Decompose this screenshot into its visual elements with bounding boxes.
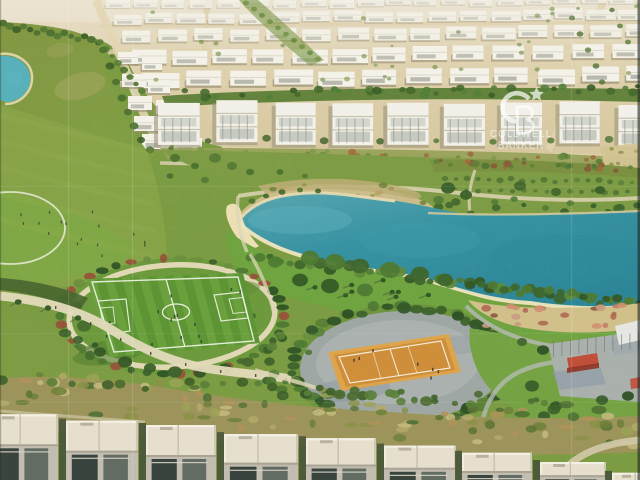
svg-text:BANKER: BANKER [498, 141, 545, 152]
svg-text:COLDWELL: COLDWELL [490, 129, 552, 140]
